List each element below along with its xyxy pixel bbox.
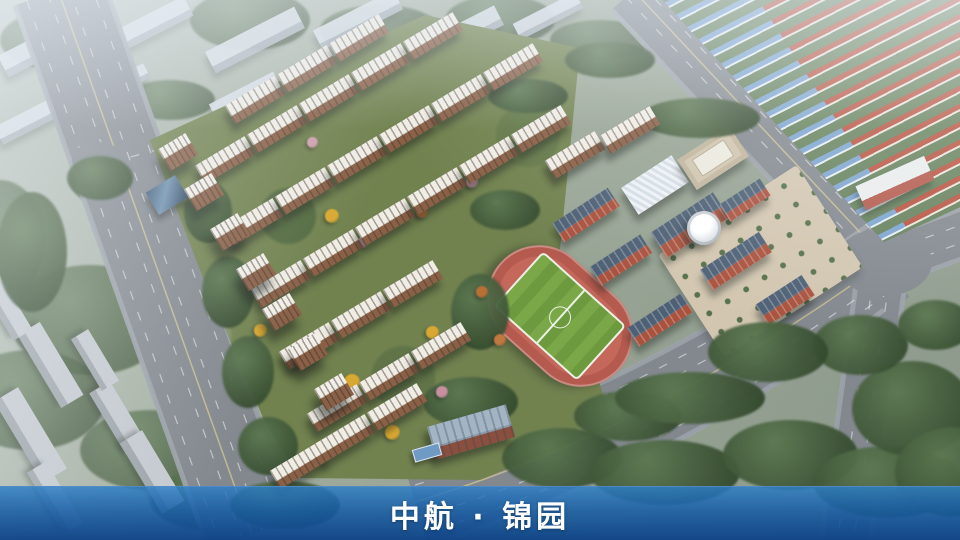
rotunda-building bbox=[687, 211, 721, 245]
autumn-tree bbox=[325, 209, 339, 223]
tree-cluster bbox=[640, 98, 760, 138]
autumn-tree bbox=[436, 386, 448, 398]
tree-cluster bbox=[67, 156, 133, 200]
tree-cluster bbox=[615, 372, 765, 424]
aerial-rendering: 中航 · 锦园 bbox=[0, 0, 960, 540]
tree-cluster bbox=[708, 322, 828, 382]
autumn-tree bbox=[385, 425, 400, 440]
autumn-tree bbox=[476, 286, 488, 298]
project-title-banner: 中航 · 锦园 bbox=[0, 486, 960, 540]
autumn-tree bbox=[494, 334, 506, 346]
tree-cluster bbox=[222, 336, 274, 408]
autumn-tree bbox=[307, 137, 318, 148]
tree-cluster bbox=[470, 190, 540, 230]
project-title: 中航 · 锦园 bbox=[390, 492, 570, 536]
tree-cluster bbox=[565, 42, 655, 78]
autumn-tree bbox=[254, 324, 267, 337]
tree-cluster bbox=[0, 192, 67, 312]
